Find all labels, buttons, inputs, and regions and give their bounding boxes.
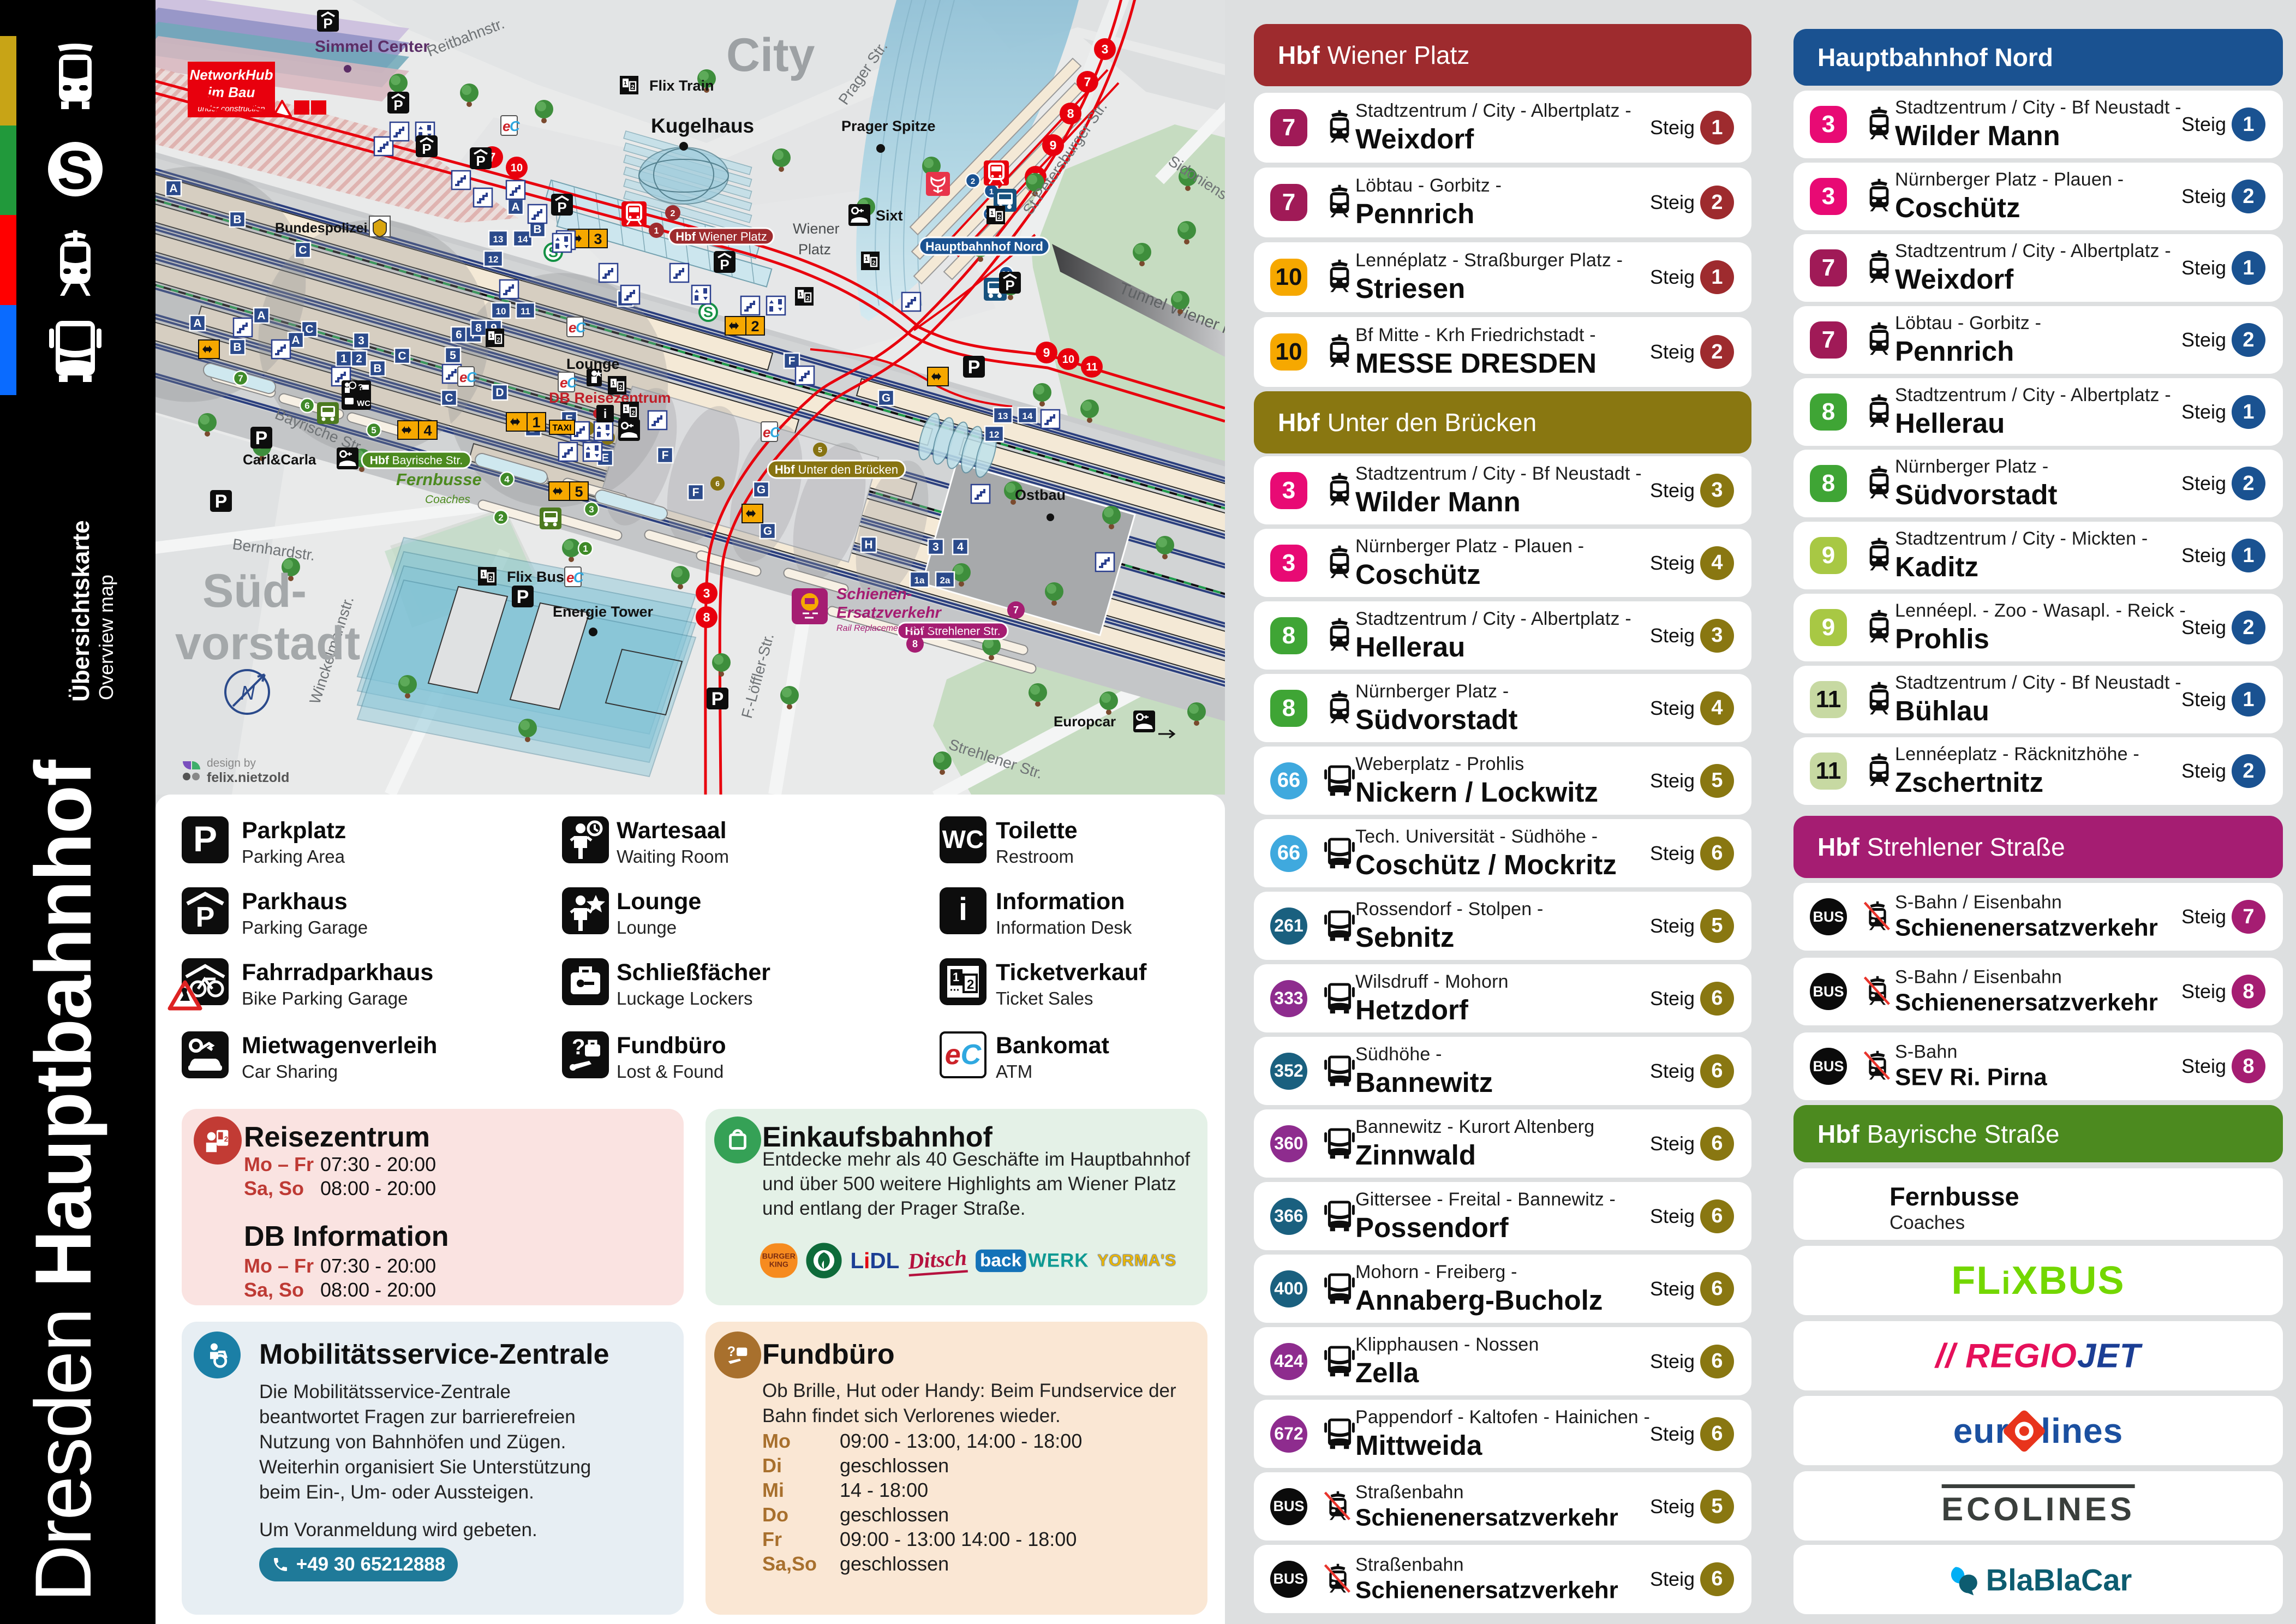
svg-text:Flix Train: Flix Train — [649, 77, 714, 94]
svg-text:Simmel Center: Simmel Center — [315, 38, 429, 56]
svg-text:Fernbusse: Fernbusse — [396, 470, 482, 489]
svg-text:2: 2 — [498, 512, 503, 523]
svg-text:2: 2 — [356, 353, 362, 365]
svg-text:WC: WC — [357, 399, 370, 408]
svg-text:C: C — [445, 392, 453, 404]
svg-text:TAXI: TAXI — [552, 423, 571, 433]
svg-text:7: 7 — [1084, 75, 1091, 89]
svg-text:9: 9 — [1043, 345, 1050, 360]
svg-text:A: A — [169, 182, 177, 195]
svg-text:C: C — [298, 244, 307, 256]
svg-text:D: D — [495, 386, 504, 399]
svg-text:C: C — [398, 350, 406, 362]
svg-text:13: 13 — [998, 411, 1008, 421]
svg-text:Platz: Platz — [798, 241, 831, 258]
svg-text:12: 12 — [989, 429, 1000, 440]
svg-text:P: P — [196, 901, 215, 933]
svg-text:7: 7 — [1013, 605, 1019, 616]
svg-text:10: 10 — [496, 306, 506, 317]
svg-text:1: 1 — [989, 187, 994, 196]
svg-text:S: S — [703, 304, 713, 320]
svg-text:B: B — [233, 213, 241, 226]
svg-text:Coaches: Coaches — [425, 493, 470, 506]
svg-text:Rail Replacement Service: Rail Replacement Service — [836, 624, 937, 633]
svg-text:2: 2 — [224, 1135, 229, 1143]
svg-text:G: G — [763, 525, 772, 538]
svg-text:4: 4 — [957, 541, 964, 553]
svg-text:Bundespolizei: Bundespolizei — [275, 220, 367, 236]
svg-text:13: 13 — [493, 234, 504, 244]
svg-text:14: 14 — [518, 234, 528, 244]
svg-text:6: 6 — [456, 329, 462, 341]
svg-text:2: 2 — [671, 209, 675, 218]
svg-text:6: 6 — [715, 479, 720, 488]
svg-text:1: 1 — [953, 970, 959, 984]
svg-text:Sixt: Sixt — [876, 207, 903, 224]
svg-text:8: 8 — [912, 638, 918, 649]
svg-text:Hbf Bayrische Str.: Hbf Bayrische Str. — [370, 455, 463, 467]
svg-text:B: B — [373, 362, 381, 375]
svg-text:C: C — [305, 323, 313, 336]
svg-text:A: A — [511, 201, 519, 213]
svg-text:1a: 1a — [914, 575, 925, 586]
svg-text:?: ? — [572, 1035, 585, 1059]
svg-text:felix.nietzold: felix.nietzold — [207, 770, 289, 785]
svg-text:3: 3 — [703, 586, 710, 600]
svg-text:1: 1 — [340, 353, 347, 365]
svg-text:6: 6 — [304, 401, 309, 411]
svg-text:11: 11 — [1086, 361, 1097, 373]
svg-text:3: 3 — [589, 504, 594, 515]
svg-text:12: 12 — [488, 254, 499, 265]
svg-text:3: 3 — [594, 231, 602, 247]
svg-text:S: S — [57, 140, 94, 201]
svg-text:NetworkHub: NetworkHub — [189, 67, 273, 83]
svg-text:8: 8 — [1067, 106, 1074, 121]
svg-text:Schienen-: Schienen- — [836, 586, 912, 603]
svg-text:5: 5 — [575, 483, 583, 500]
svg-text:F: F — [662, 449, 669, 462]
svg-text:3: 3 — [1102, 42, 1109, 56]
svg-text:1: 1 — [654, 226, 659, 236]
svg-text:Ersatzverkehr: Ersatzverkehr — [836, 604, 942, 622]
svg-text:F: F — [692, 486, 699, 499]
svg-text:N: N — [241, 682, 255, 704]
svg-text:8: 8 — [703, 610, 710, 624]
svg-text:G: G — [757, 483, 766, 496]
svg-text:F: F — [788, 355, 796, 367]
svg-text:A: A — [257, 309, 265, 322]
svg-text:2a: 2a — [940, 575, 950, 586]
svg-text:Wiener: Wiener — [793, 220, 840, 237]
svg-text:Süd-: Süd- — [202, 565, 307, 617]
svg-text:3: 3 — [932, 541, 939, 553]
svg-text:Hbf Unter den Brücken: Hbf Unter den Brücken — [775, 463, 898, 476]
svg-text:11: 11 — [521, 306, 530, 317]
svg-text:14: 14 — [1023, 411, 1033, 421]
svg-text:Europcar: Europcar — [1054, 713, 1116, 730]
svg-text:5: 5 — [371, 425, 376, 435]
svg-text:8: 8 — [475, 322, 482, 335]
svg-text:G: G — [882, 392, 890, 404]
svg-text:3: 3 — [358, 335, 364, 347]
svg-text:H: H — [864, 539, 872, 551]
svg-text:2: 2 — [967, 977, 974, 992]
svg-text:2: 2 — [751, 318, 759, 335]
svg-text:Prager Spitze: Prager Spitze — [841, 118, 936, 134]
svg-text:Carl&Carla: Carl&Carla — [243, 451, 316, 468]
svg-text:Hbf Wiener Platz: Hbf Wiener Platz — [675, 230, 767, 243]
svg-text:10: 10 — [511, 162, 523, 174]
svg-text:9: 9 — [1050, 138, 1057, 152]
svg-text:Hauptbahnhof Nord: Hauptbahnhof Nord — [925, 239, 1043, 253]
svg-text:B: B — [233, 341, 241, 354]
svg-text:Ostbau: Ostbau — [1015, 487, 1066, 503]
svg-text:5: 5 — [818, 445, 822, 454]
svg-text:7: 7 — [238, 373, 243, 384]
svg-text:Kugelhaus: Kugelhaus — [651, 115, 754, 137]
svg-text:vorstadt: vorstadt — [175, 617, 360, 670]
svg-text:1: 1 — [583, 544, 588, 554]
svg-text:4: 4 — [504, 474, 510, 485]
svg-text:Energie Tower: Energie Tower — [553, 604, 654, 620]
svg-text:B: B — [533, 223, 541, 236]
svg-text:10: 10 — [1062, 354, 1074, 366]
svg-text:A: A — [193, 317, 201, 330]
svg-text:i: i — [603, 407, 607, 421]
svg-text:A: A — [291, 334, 300, 347]
svg-text:design by: design by — [207, 757, 256, 769]
svg-text:1: 1 — [532, 414, 540, 431]
svg-text:?: ? — [727, 1344, 736, 1359]
svg-text:2: 2 — [971, 177, 975, 186]
svg-text:4: 4 — [423, 422, 432, 439]
svg-text:5: 5 — [450, 349, 456, 362]
svg-text:City: City — [726, 29, 815, 81]
svg-text:Flix Bus: Flix Bus — [507, 569, 564, 585]
